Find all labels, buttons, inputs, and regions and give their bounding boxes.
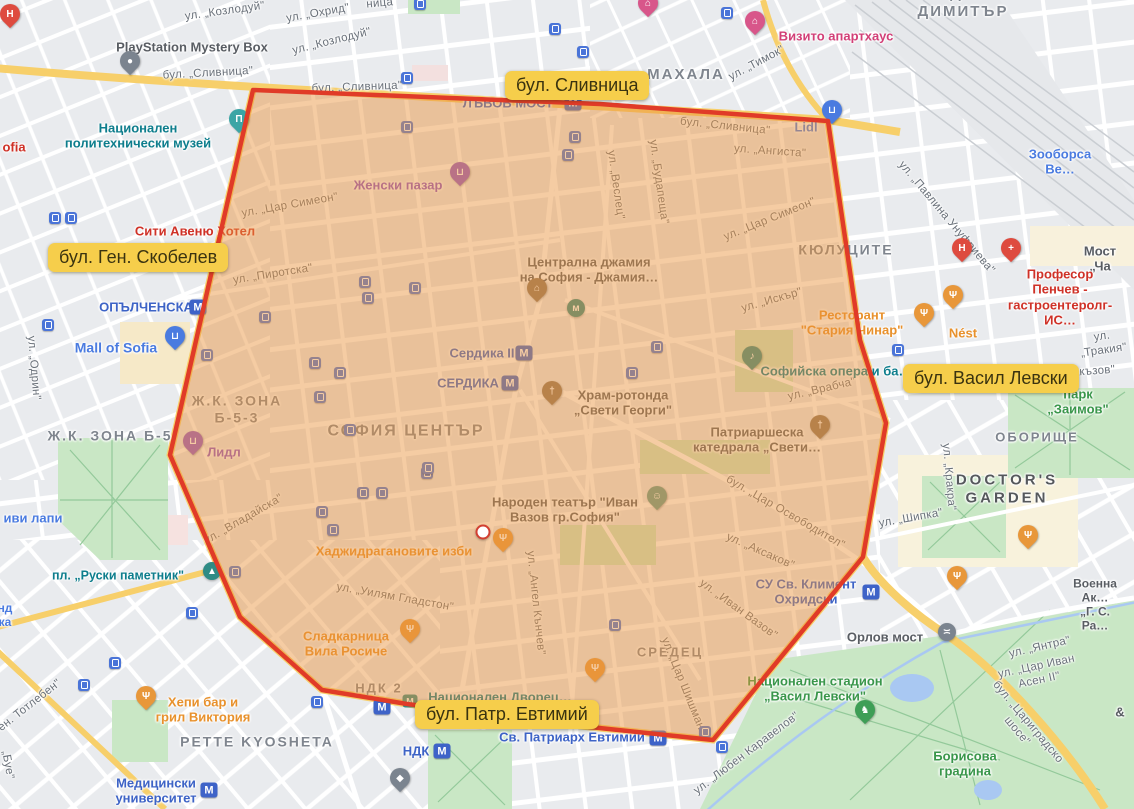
center-marker: [476, 525, 491, 540]
annotation-layer: бул. Сливницабул. Ген. Скобелевбул. Васи…: [0, 0, 1134, 809]
route-highlight-label: бул. Васил Левски: [903, 364, 1079, 393]
map-canvas[interactable]: ХАДЖИДИМИТЪРМАХАЛАКЮЛУЦИТЕЖ.К. ЗОНА Б-5-…: [0, 0, 1134, 809]
route-highlight-label: бул. Ген. Скобелев: [48, 243, 228, 272]
route-highlight-label: бул. Патр. Евтимий: [415, 700, 599, 729]
route-highlight-label: бул. Сливница: [505, 71, 649, 100]
